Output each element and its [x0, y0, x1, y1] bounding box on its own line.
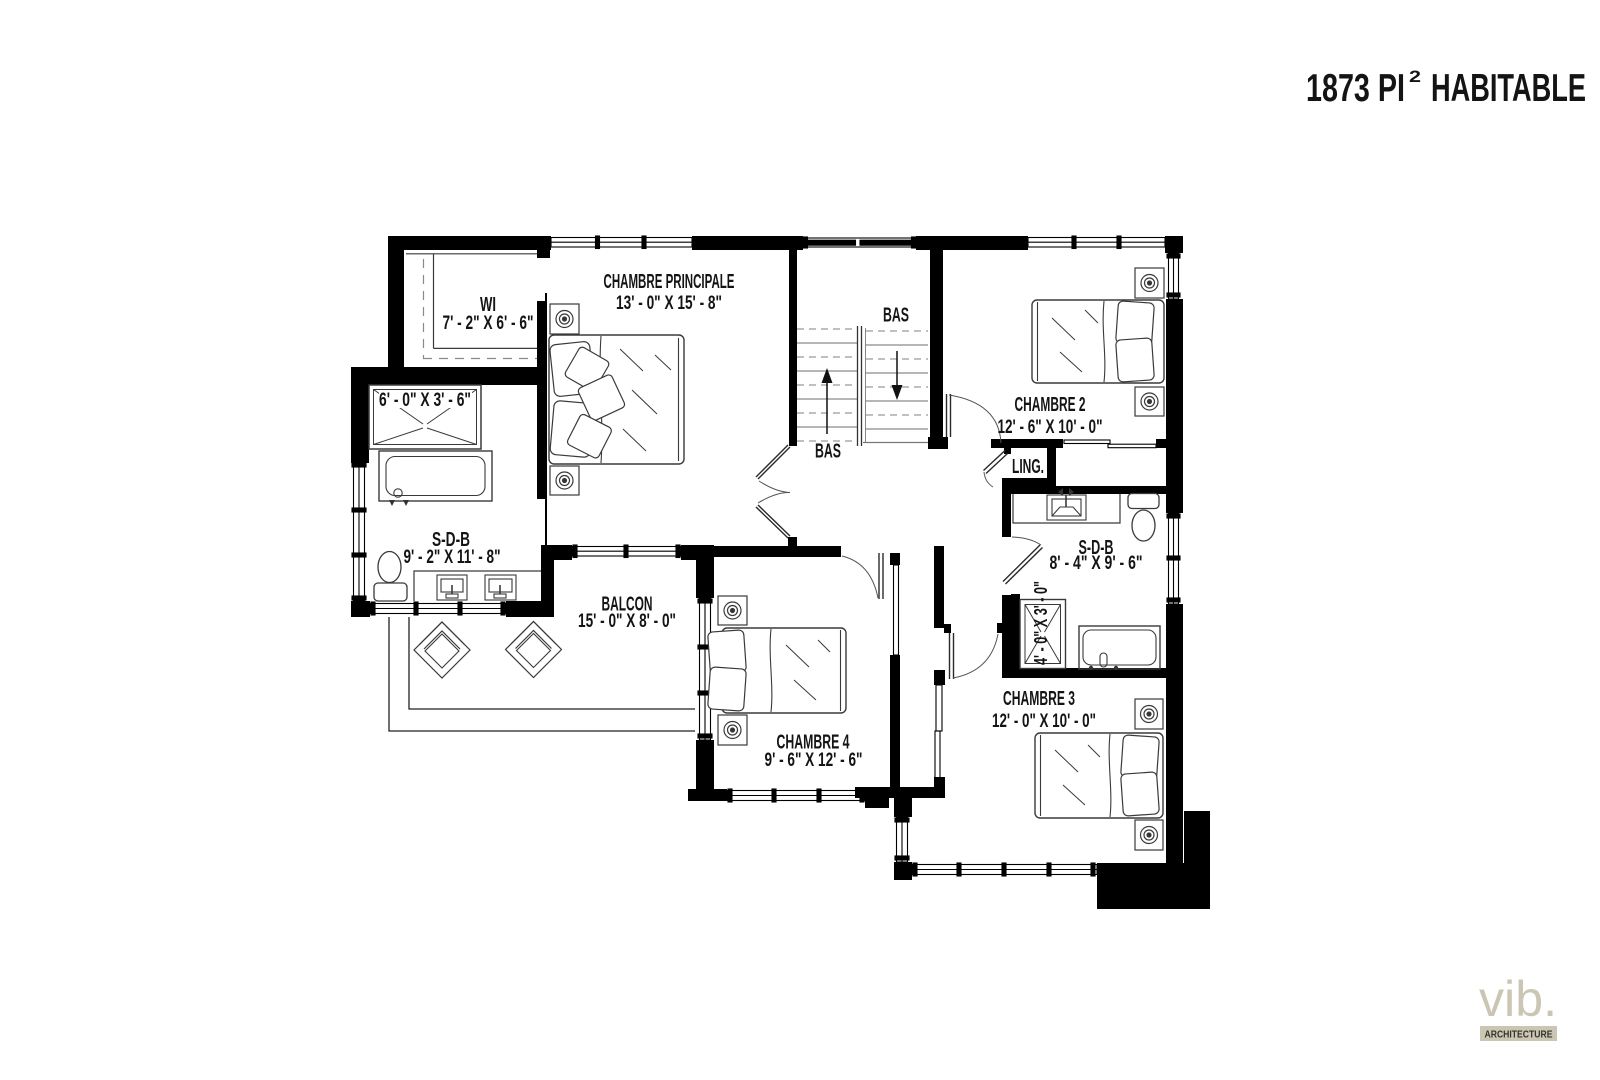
svg-text:9' - 6" X 12' - 6": 9' - 6" X 12' - 6" [765, 750, 863, 771]
svg-text:9' - 2" X 11' - 8": 9' - 2" X 11' - 8" [404, 547, 501, 568]
svg-text:CHAMBRE 2: CHAMBRE 2 [1015, 394, 1086, 416]
svg-text:12' - 0" X 10' - 0": 12' - 0" X 10' - 0" [992, 711, 1096, 732]
svg-text:1873 PI: 1873 PI [1306, 67, 1405, 110]
svg-text:15' - 0" X 8' - 0": 15' - 0" X 8' - 0" [578, 611, 676, 632]
svg-text:4' - 0" X 3' - 0": 4' - 0" X 3' - 0" [1031, 581, 1051, 665]
svg-text:6' - 0" X 3' - 6": 6' - 0" X 3' - 6" [379, 390, 471, 411]
svg-text:HABITABLE: HABITABLE [1431, 67, 1586, 110]
svg-text:2: 2 [1409, 67, 1421, 86]
svg-text:7' - 2" X 6' - 6": 7' - 2" X 6' - 6" [443, 313, 534, 334]
svg-text:BAS: BAS [883, 305, 909, 327]
svg-text:13' - 0" X 15' - 8": 13' - 0" X 15' - 8" [616, 293, 722, 314]
svg-text:12' - 6" X 10' - 0": 12' - 6" X 10' - 0" [998, 417, 1103, 438]
svg-text:CHAMBRE PRINCIPALE: CHAMBRE PRINCIPALE [604, 271, 735, 293]
svg-text:BAS: BAS [815, 441, 841, 463]
svg-text:vib.: vib. [1479, 971, 1557, 1027]
svg-text:ARCHITECTURE: ARCHITECTURE [1485, 1029, 1553, 1041]
svg-text:LING.: LING. [1012, 456, 1044, 478]
svg-text:CHAMBRE 3: CHAMBRE 3 [1003, 688, 1075, 710]
svg-text:8' - 4" X 9' - 6": 8' - 4" X 9' - 6" [1050, 553, 1143, 574]
